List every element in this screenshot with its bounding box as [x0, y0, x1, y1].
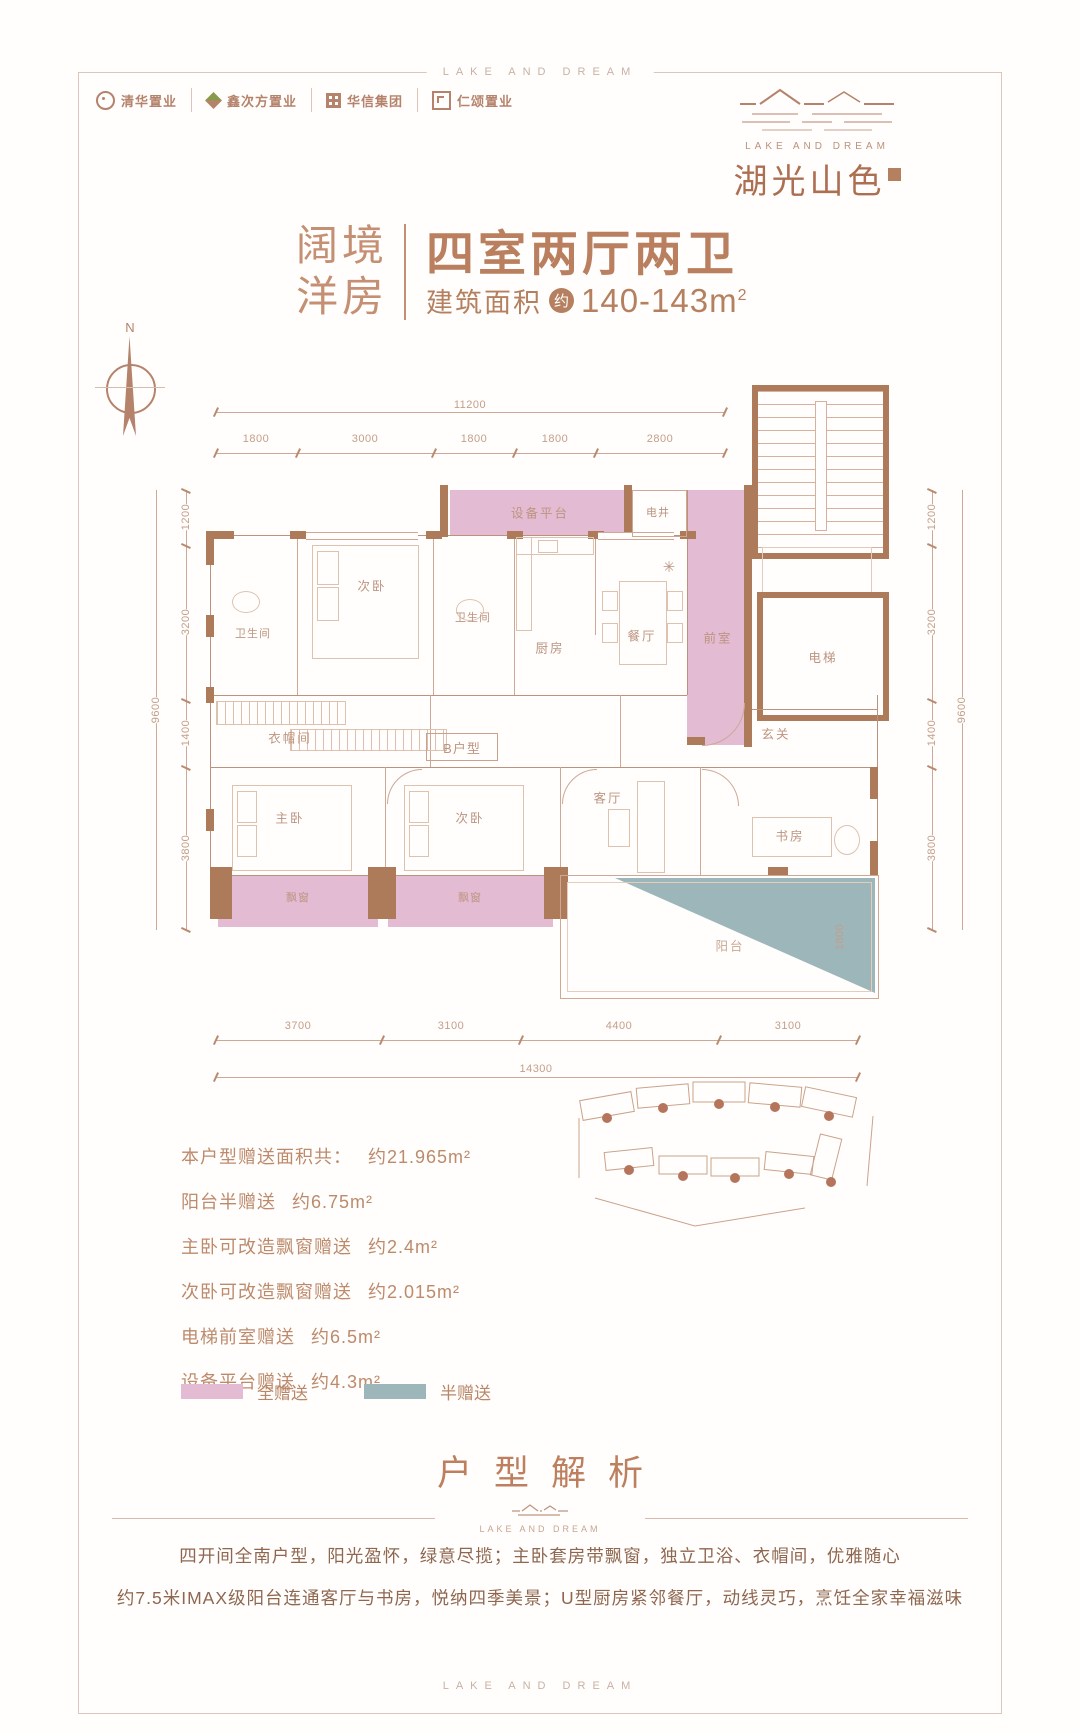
- mountain-lake-logo-icon: [732, 82, 902, 134]
- brand-cn: 湖光山色: [722, 154, 912, 203]
- room-label-bath1: 卫生间: [235, 625, 271, 641]
- full-gift-label: 全赠送: [257, 1379, 308, 1404]
- area-label: 建筑面积: [426, 281, 542, 320]
- partner-huaxin: 华信集团: [326, 91, 403, 110]
- analysis-line1: 四开间全南户型，阳光盈怀，绿意尽揽；主卧套房带飘窗，独立卫浴、衣帽间，优雅随心: [0, 1543, 1080, 1568]
- divider-line-left: [112, 1518, 435, 1520]
- dim-right-seg: 3200: [924, 609, 940, 635]
- north-label: N: [125, 320, 134, 335]
- gift-item: 本户型赠送面积共：约21.965m²: [181, 1143, 471, 1169]
- dim-right-seg: 3800: [924, 835, 940, 861]
- divider: [191, 88, 192, 112]
- room-label-elevator: 电梯: [808, 647, 837, 666]
- maze-logo-icon: [432, 91, 451, 110]
- gift-item: 次卧可改造飘窗赠送约2.015m²: [181, 1278, 471, 1304]
- dim-top-seg: 1800: [240, 433, 272, 445]
- dim-top-seg: 3000: [349, 433, 381, 445]
- partner-name: 华信集团: [347, 91, 403, 110]
- dim-top-seg: 1800: [458, 433, 490, 445]
- elevator: 电梯: [757, 592, 889, 721]
- dragonfly-logo-icon: [205, 92, 222, 109]
- room-label-bay1: 飘窗: [286, 889, 310, 905]
- tag-line2: 洋房: [296, 271, 388, 322]
- dim-left-total: 9600: [148, 697, 164, 723]
- dim-bottom-total: 14300: [516, 1063, 555, 1075]
- full-gift-swatch: [181, 1384, 243, 1399]
- room-label-balcony: 阳台: [715, 936, 744, 955]
- partner-xincifang: 鑫次方置业: [206, 91, 297, 110]
- dim-bottom-seg: 3700: [282, 1020, 314, 1032]
- legend-half-gift: 半赠送: [364, 1379, 491, 1404]
- unit-tag-label: B户型: [443, 738, 481, 757]
- half-gift-swatch: [364, 1384, 426, 1399]
- half-gift-label: 半赠送: [440, 1379, 491, 1404]
- gift-item: 主卧可改造飘窗赠送约2.4m²: [181, 1233, 471, 1259]
- analysis-line2: 约7.5米IMAX级阳台连通客厅与书房，悦纳四季美景；U型厨房紧邻餐厅，动线灵巧…: [0, 1585, 1080, 1610]
- dim-bottom-seg: 3100: [435, 1020, 467, 1032]
- brand-logo: LAKE AND DREAM 湖光山色: [722, 82, 912, 203]
- dim-left-seg: 3200: [178, 609, 194, 635]
- room-label-entry: 玄关: [761, 724, 790, 743]
- brand-en: LAKE AND DREAM: [722, 141, 912, 152]
- room-label-front: 前室: [703, 628, 732, 647]
- brand-seal-icon: [888, 168, 901, 181]
- dim-left-seg: 3800: [178, 835, 194, 861]
- floorplan: 电梯: [140, 385, 1000, 1115]
- area-line: 建筑面积 约 140-143m2: [426, 281, 748, 320]
- ac-symbol-icon: ✳: [663, 558, 678, 576]
- stair-rail: [815, 401, 827, 531]
- room-label-master: 主卧: [275, 808, 304, 827]
- grid-logo-icon: [326, 93, 341, 108]
- product-tag: 阔境 洋房: [296, 220, 388, 322]
- divider: [311, 88, 312, 112]
- partner-rensong: 仁颂置业: [432, 91, 513, 110]
- dim-bottom-seg: 4400: [603, 1020, 635, 1032]
- area-value: 140-143m2: [581, 282, 748, 320]
- divider-line-right: [645, 1518, 968, 1520]
- gift-item: 电梯前室赠送约6.5m²: [181, 1323, 471, 1349]
- approx-badge: 约: [549, 288, 574, 313]
- mini-mountain-icon: [508, 1503, 572, 1518]
- unit-tag-box: B户型: [426, 733, 498, 761]
- room-label-equip: 设备平台: [511, 503, 569, 522]
- analysis-title: 户型解析: [0, 1445, 1080, 1496]
- divider-logo: LAKE AND DREAM: [435, 1503, 645, 1534]
- dim-top-seg: 2800: [644, 433, 676, 445]
- room-label-bed-bottom: 次卧: [455, 808, 484, 827]
- room-label-living: 客厅: [593, 788, 622, 807]
- dim-left-seg: 1200: [178, 504, 194, 530]
- tag-line1: 阔境: [296, 220, 388, 271]
- lift-lobby: [762, 547, 872, 593]
- gift-legend: 全赠送 半赠送: [181, 1379, 491, 1404]
- ring-logo-icon: [96, 91, 115, 110]
- frame-brand-top: LAKE AND DREAM: [427, 66, 654, 78]
- room-label-bed-top: 次卧: [357, 576, 386, 595]
- partner-logos: 清华置业 鑫次方置业 华信集团 仁颂置业: [96, 88, 513, 112]
- gift-item: 阳台半赠送约6.75m²: [181, 1188, 471, 1214]
- dim-right-seg: 1400: [924, 720, 940, 746]
- room-label-kitchen: 厨房: [535, 638, 564, 657]
- analysis-divider: LAKE AND DREAM: [112, 1503, 968, 1534]
- partner-name: 鑫次方置业: [227, 91, 297, 110]
- site-key-plan: [575, 1058, 875, 1248]
- unit-headline: 四室两厅两卫: [426, 214, 738, 284]
- partner-name: 仁颂置业: [457, 91, 513, 110]
- dim-right-total: 9600: [954, 697, 970, 723]
- dim-top-seg: 1800: [539, 433, 571, 445]
- legend-full-gift: 全赠送: [181, 1379, 308, 1404]
- partner-name: 清华置业: [121, 91, 177, 110]
- divider-brand-text: LAKE AND DREAM: [435, 1524, 645, 1534]
- dim-balcony-depth: 1800: [832, 924, 848, 950]
- poster-page: LAKE AND DREAM LAKE AND DREAM 清华置业 鑫次方置业…: [0, 0, 1080, 1734]
- room-label-shaft: 电井: [646, 504, 670, 520]
- stairwell: [752, 385, 889, 559]
- room-label-bath2: 卫生间: [455, 609, 491, 625]
- dim-right-seg: 1200: [924, 504, 940, 530]
- frame-brand-bottom: LAKE AND DREAM: [427, 1680, 654, 1692]
- room-label-dining: 餐厅: [625, 626, 658, 645]
- room-label-closet: 衣帽间: [268, 728, 312, 747]
- gift-list: 本户型赠送面积共：约21.965m² 阳台半赠送约6.75m² 主卧可改造飘窗赠…: [181, 1143, 471, 1394]
- dim-top-total: 11200: [451, 399, 489, 411]
- room-label-study: 书房: [775, 826, 804, 845]
- title-divider: [404, 224, 406, 320]
- dim-left-seg: 1400: [178, 720, 194, 746]
- room-label-bay2: 飘窗: [458, 889, 482, 905]
- partner-qinghua: 清华置业: [96, 91, 177, 110]
- dim-bottom-seg: 3100: [772, 1020, 804, 1032]
- divider: [417, 88, 418, 112]
